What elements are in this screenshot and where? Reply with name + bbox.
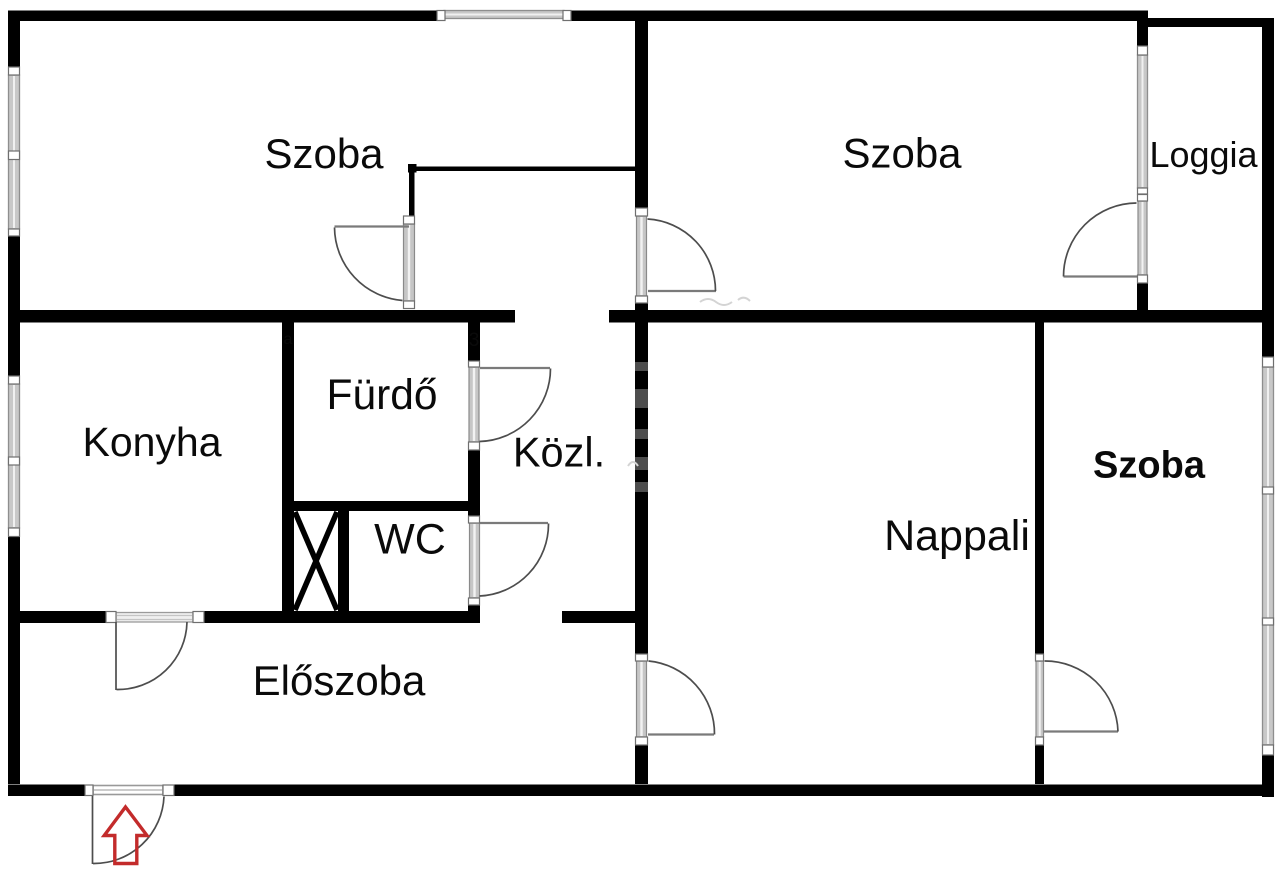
svg-text:Előszoba: Előszoba <box>253 657 426 704</box>
svg-text:Szoba: Szoba <box>842 130 962 177</box>
svg-text:Szoba: Szoba <box>264 130 384 177</box>
svg-text:Fürdő: Fürdő <box>326 372 437 419</box>
svg-text:Nappali: Nappali <box>884 512 1030 560</box>
svg-text:WC: WC <box>374 516 446 564</box>
svg-text:3: 3 <box>469 330 480 351</box>
svg-text:Konyha: Konyha <box>82 419 221 465</box>
svg-text:Közl.: Közl. <box>513 429 605 476</box>
svg-text:Szoba: Szoba <box>1093 445 1206 487</box>
svg-text:a: a <box>284 331 293 348</box>
svg-text:Loggia: Loggia <box>1149 134 1258 175</box>
